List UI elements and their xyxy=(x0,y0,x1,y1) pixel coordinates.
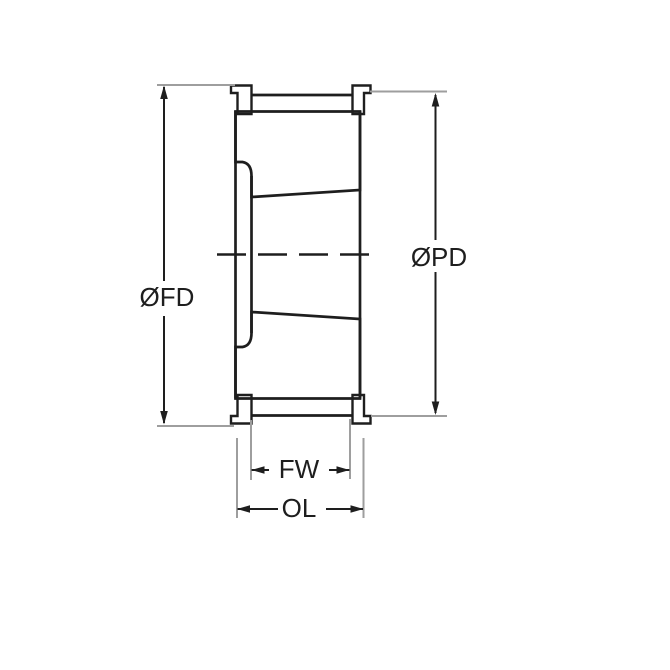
flange-top-left xyxy=(231,86,252,115)
pd-arrow-down xyxy=(432,402,440,416)
dimension-face-width: FW xyxy=(251,419,350,484)
fd-arrow-down xyxy=(160,411,168,425)
ol-arrow-right xyxy=(351,505,364,512)
pd-label: ØPD xyxy=(411,242,467,272)
fw-arrow-right xyxy=(337,466,350,473)
ol-label: OL xyxy=(282,493,317,523)
fd-label: ØFD xyxy=(140,282,195,312)
fd-arrow-up xyxy=(160,86,168,100)
fw-arrow-left xyxy=(252,466,265,473)
pulley-upper-half-section xyxy=(236,112,361,198)
fw-label: FW xyxy=(279,454,320,484)
pulley-lower-half-section xyxy=(236,312,361,399)
pulley-section-drawing: ØFD ØPD FW OL xyxy=(0,0,670,670)
flange-top-right xyxy=(353,86,371,115)
dimension-pitch-diameter: ØPD xyxy=(370,92,467,417)
ol-arrow-left xyxy=(237,505,250,512)
pd-arrow-up xyxy=(432,93,440,107)
drawing-canvas: ØFD ØPD FW OL xyxy=(0,0,670,670)
